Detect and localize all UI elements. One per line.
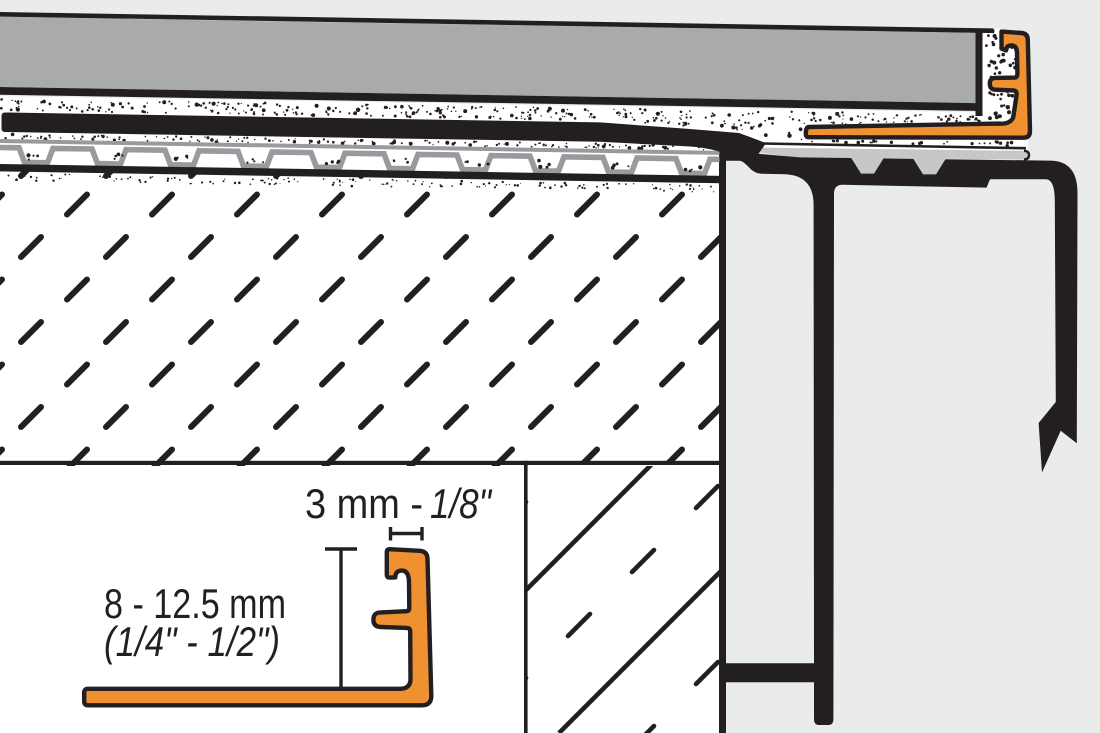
svg-text:(1/4" - 1/2"): (1/4" - 1/2"): [104, 618, 280, 665]
svg-text:3 mm -: 3 mm -: [305, 480, 423, 527]
svg-text:1/8": 1/8": [430, 480, 493, 527]
